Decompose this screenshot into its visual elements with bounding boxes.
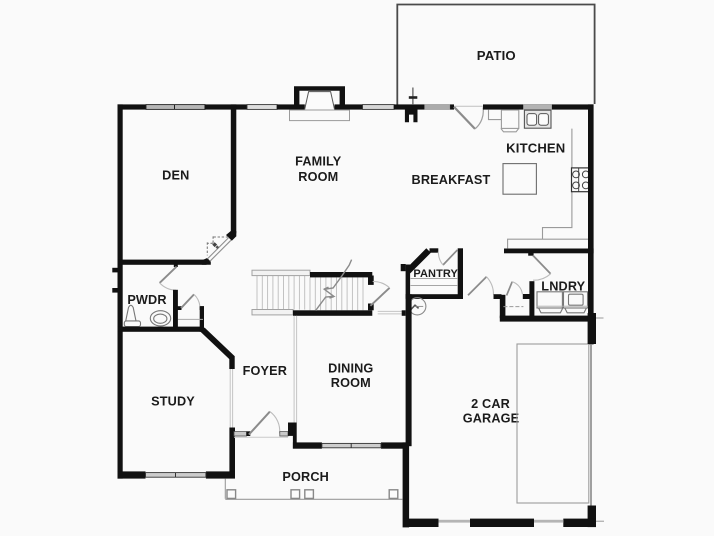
- svg-text:DEN: DEN: [162, 169, 189, 183]
- svg-text:PANTRY: PANTRY: [413, 268, 458, 280]
- svg-text:FOYER: FOYER: [243, 364, 287, 378]
- svg-text:PORCH: PORCH: [282, 470, 329, 484]
- svg-text:2 CAR: 2 CAR: [471, 397, 510, 411]
- svg-text:PWDR: PWDR: [127, 293, 166, 307]
- svg-text:PATIO: PATIO: [477, 48, 516, 63]
- svg-text:ROOM: ROOM: [331, 376, 371, 390]
- svg-text:DINING: DINING: [328, 361, 373, 375]
- svg-text:KITCHEN: KITCHEN: [506, 140, 565, 155]
- svg-text:FAMILY: FAMILY: [295, 155, 342, 169]
- svg-text:BREAKFAST: BREAKFAST: [412, 173, 491, 187]
- svg-text:GARAGE: GARAGE: [463, 411, 520, 425]
- svg-text:STUDY: STUDY: [151, 395, 195, 409]
- svg-text:ROOM: ROOM: [298, 170, 338, 184]
